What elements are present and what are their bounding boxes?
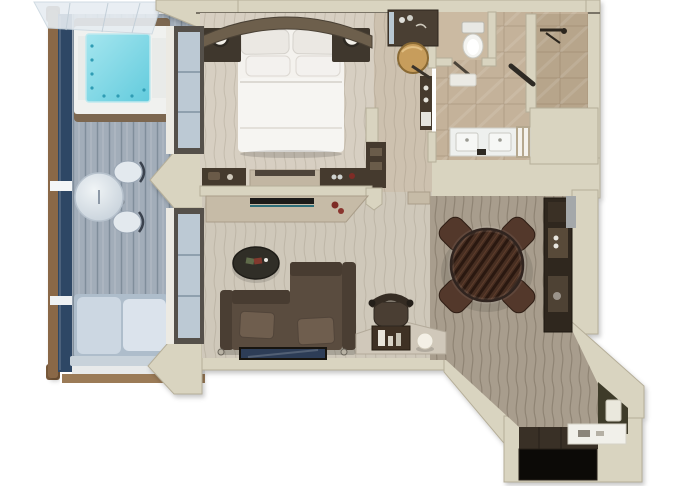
hot-tub-seat-right: [152, 38, 166, 98]
seat-cushion: [239, 311, 274, 339]
desk-chair-seat: [374, 302, 408, 326]
bath-bench: [450, 74, 476, 86]
tv: [250, 198, 314, 204]
bedroom-slider-glass: [178, 32, 200, 148]
hot-tub-step-left: [78, 36, 86, 100]
balcony-lounger: [70, 294, 170, 366]
hot-tub: [74, 18, 170, 122]
window-sill: [166, 208, 174, 344]
lounger-cushion-left: [77, 297, 121, 354]
shower-wall: [526, 14, 536, 112]
balcony-chair-top: [114, 161, 142, 183]
double-vanity: [450, 126, 530, 158]
red-decor: [338, 208, 344, 214]
vanity-sink-left: [456, 133, 478, 151]
duvet: [238, 78, 344, 152]
appliance-panel: [566, 196, 576, 228]
railing-divider-low: [50, 296, 74, 305]
bath-corner-wall: [530, 108, 598, 164]
railing-divider-mid: [50, 181, 74, 191]
bedroom-right-wall-stub: [366, 108, 378, 142]
red-decor: [332, 202, 339, 209]
red-decor: [349, 173, 355, 179]
toilet: [462, 22, 484, 58]
hot-tub-water: [86, 34, 150, 102]
floor-plan-rendering: [0, 0, 680, 486]
sofa-arm-right: [342, 262, 356, 350]
window-sill: [166, 26, 174, 154]
entry-door: [519, 449, 597, 480]
side-shelf: [408, 192, 430, 204]
bar-cabinet: [544, 196, 576, 332]
railing-wood-cap: [48, 10, 58, 378]
door-card-panel: [606, 400, 621, 421]
divider-wall: [200, 186, 372, 196]
floor-plan-canvas: [0, 0, 680, 486]
globe-lamp: [417, 333, 433, 349]
living-slider-glass: [178, 214, 200, 338]
seat-cushion: [297, 317, 334, 345]
coffee-table: [232, 247, 280, 283]
floor-disc: [218, 349, 224, 355]
toilet-tank: [462, 22, 484, 33]
lounger-cushion-right: [123, 299, 166, 351]
wardrobe: [388, 10, 438, 46]
dining-set: [435, 213, 538, 316]
bar-niche: [548, 228, 568, 258]
vanity-sink-right: [489, 133, 511, 151]
sofa-arm-left: [220, 290, 234, 350]
bath-left-wall-lower: [428, 132, 436, 162]
king-bed: [238, 28, 344, 158]
pillow: [246, 56, 290, 76]
balcony-chair-bottom: [113, 211, 141, 233]
floor-disc: [341, 349, 347, 355]
toilet-room-wall: [488, 12, 496, 62]
